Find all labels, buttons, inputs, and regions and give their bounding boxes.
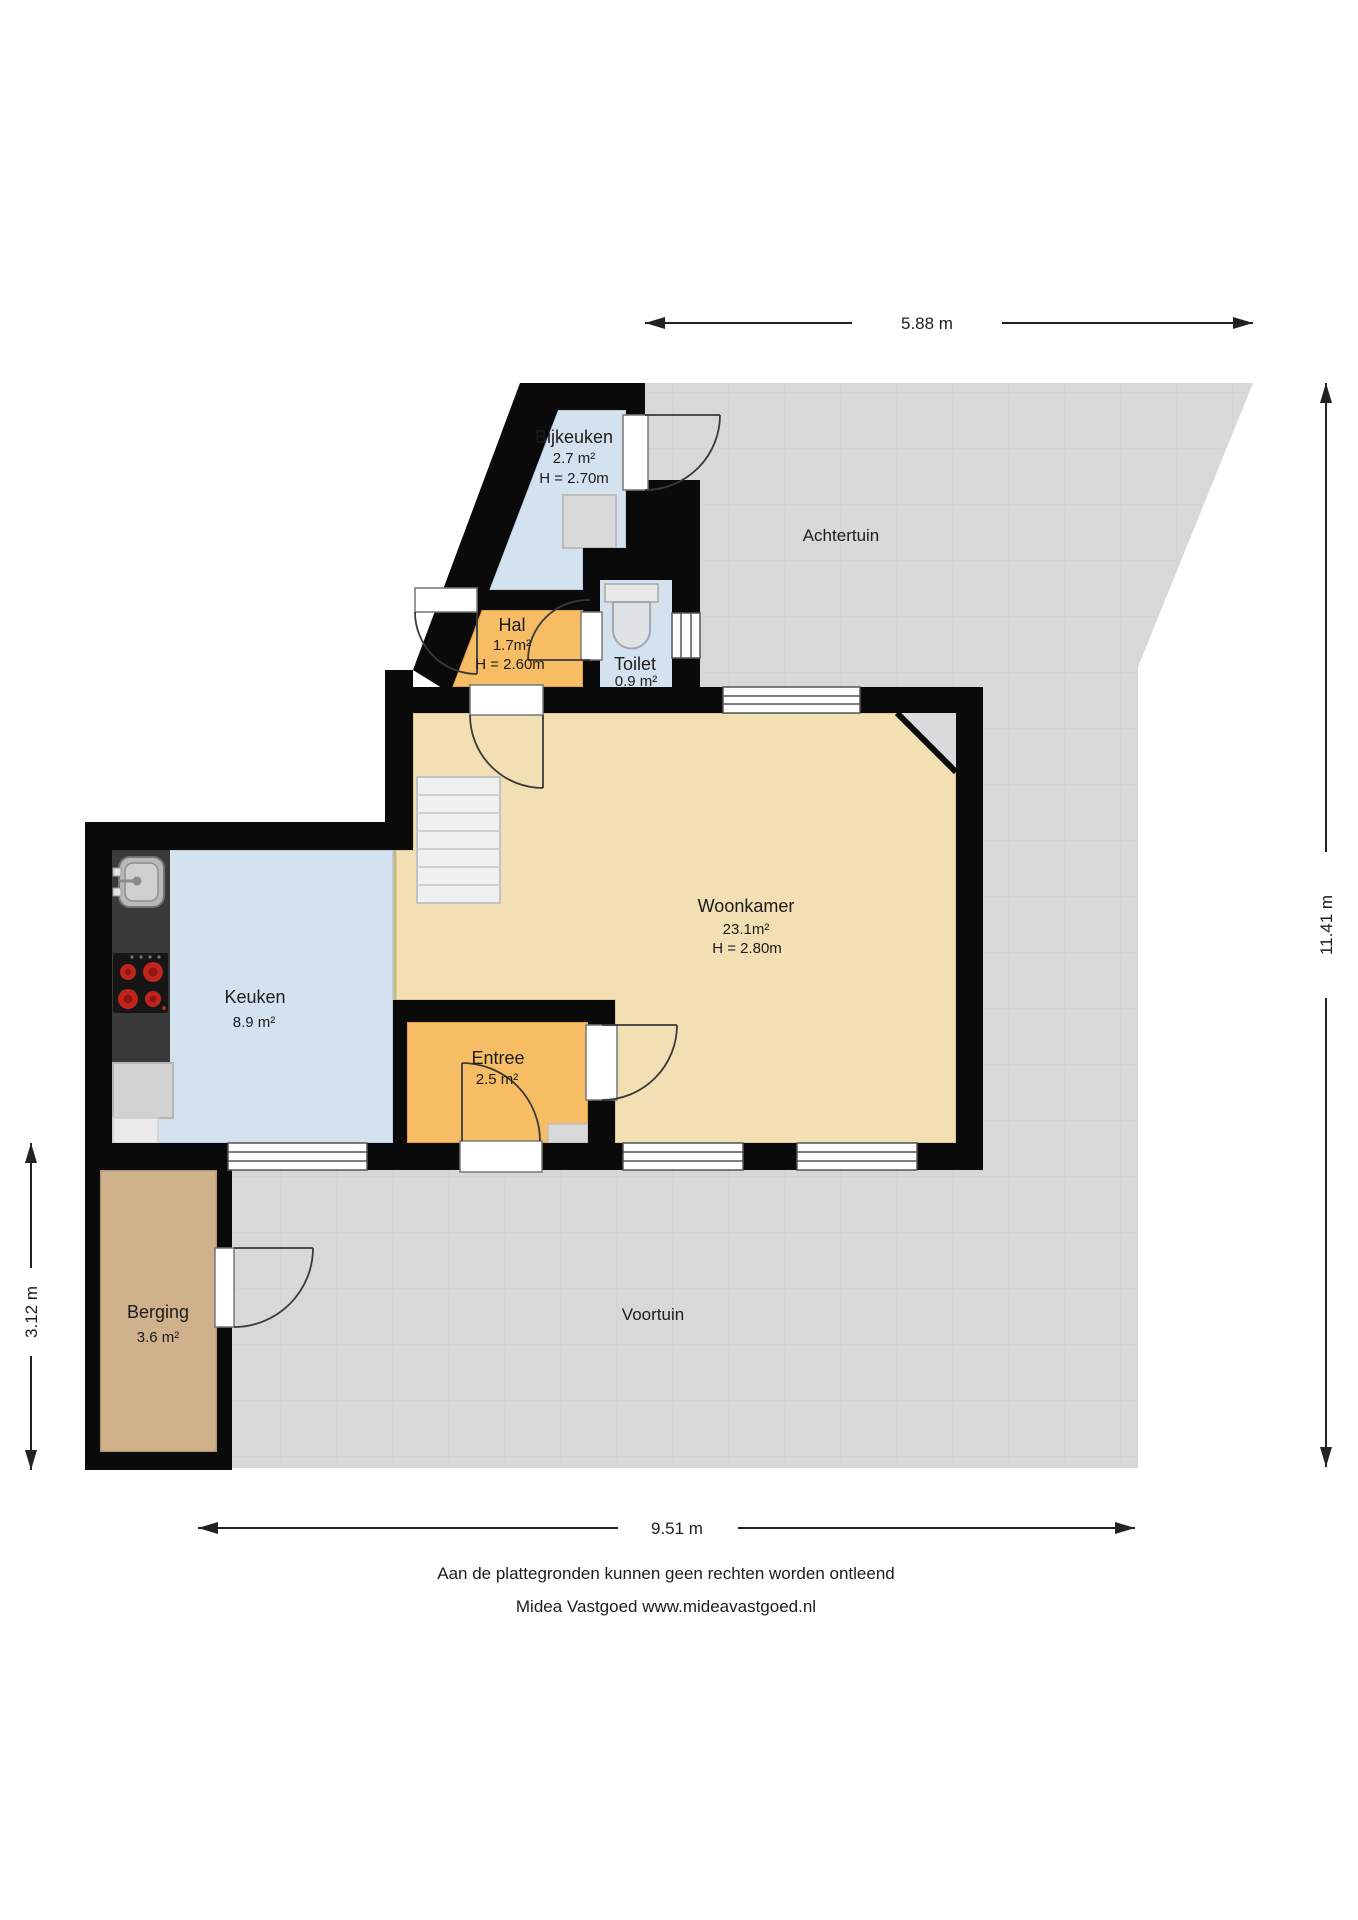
label-entree-area: 2.5 m² <box>476 1071 519 1088</box>
label-hal-area: 1.7m² <box>493 637 531 654</box>
label-woonkamer: Woonkamer <box>698 896 795 916</box>
window <box>623 1143 743 1170</box>
label-woonkamer-area: 23.1m² <box>723 921 770 938</box>
wall-segment <box>460 590 583 610</box>
label-voortuin: Voortuin <box>622 1305 684 1324</box>
wall-segment <box>393 1022 407 1143</box>
wall-segment <box>385 670 413 822</box>
refrigerator <box>113 1063 173 1118</box>
footer: Aan de plattegronden kunnen geen rechten… <box>437 1564 894 1616</box>
label-bijkeuken-area: 2.7 m² <box>553 450 596 467</box>
dimension-right: 11.41 m <box>1317 895 1336 955</box>
wall-segment <box>626 480 700 580</box>
wall-segment <box>583 548 634 580</box>
door-opening <box>586 1025 617 1100</box>
staircase <box>417 777 500 903</box>
door-opening <box>581 612 602 660</box>
bijkeuken-cabinet <box>563 495 616 548</box>
label-achtertuin: Achtertuin <box>803 526 880 545</box>
sink <box>113 857 164 907</box>
label-berging: Berging <box>127 1302 189 1322</box>
wall-segment <box>85 1452 232 1470</box>
wall-segment <box>85 1170 100 1470</box>
dimension-left: 3.12 m <box>22 1286 41 1338</box>
dimension-top: 5.88 m <box>901 314 953 333</box>
window <box>228 1143 367 1170</box>
door-opening <box>415 588 477 612</box>
label-toilet: Toilet <box>614 654 656 674</box>
footer-company: Midea Vastgoed www.mideavastgoed.nl <box>516 1597 816 1616</box>
door-opening <box>623 415 648 490</box>
window <box>723 687 860 713</box>
stove <box>113 953 168 1013</box>
window <box>797 1143 917 1170</box>
label-bijkeuken-height: H = 2.70m <box>539 470 609 487</box>
label-entree: Entree <box>471 1048 524 1068</box>
label-bijkeuken: Bijkeuken <box>535 427 613 447</box>
label-berging-area: 3.6 m² <box>137 1329 180 1346</box>
door-opening <box>470 685 543 715</box>
floorplan-page: 5.88 m 11.41 m 3.12 m 9.51 m Bijkeuken 2… <box>0 0 1358 1920</box>
label-toilet-area: 0.9 m² <box>615 673 658 690</box>
doormat <box>548 1124 588 1143</box>
wall-segment <box>85 822 413 850</box>
label-woonkamer-height: H = 2.80m <box>712 940 782 957</box>
door-opening <box>460 1141 542 1172</box>
wall-segment <box>393 1000 615 1022</box>
dimension-bottom: 9.51 m <box>651 1519 703 1538</box>
label-keuken: Keuken <box>224 987 285 1007</box>
window <box>672 613 700 658</box>
wall-segment <box>956 687 983 1170</box>
label-hal-height: H = 2.60m <box>475 656 545 673</box>
label-keuken-area: 8.9 m² <box>233 1014 276 1031</box>
wall-segment <box>85 822 112 1143</box>
floorplan-drawing: 5.88 m 11.41 m 3.12 m 9.51 m Bijkeuken 2… <box>0 0 1358 1920</box>
footer-disclaimer: Aan de plattegronden kunnen geen rechten… <box>437 1564 894 1583</box>
counter-end <box>113 1118 158 1143</box>
door-opening <box>215 1248 234 1327</box>
label-hal: Hal <box>498 615 525 635</box>
wall-segment <box>520 383 645 410</box>
